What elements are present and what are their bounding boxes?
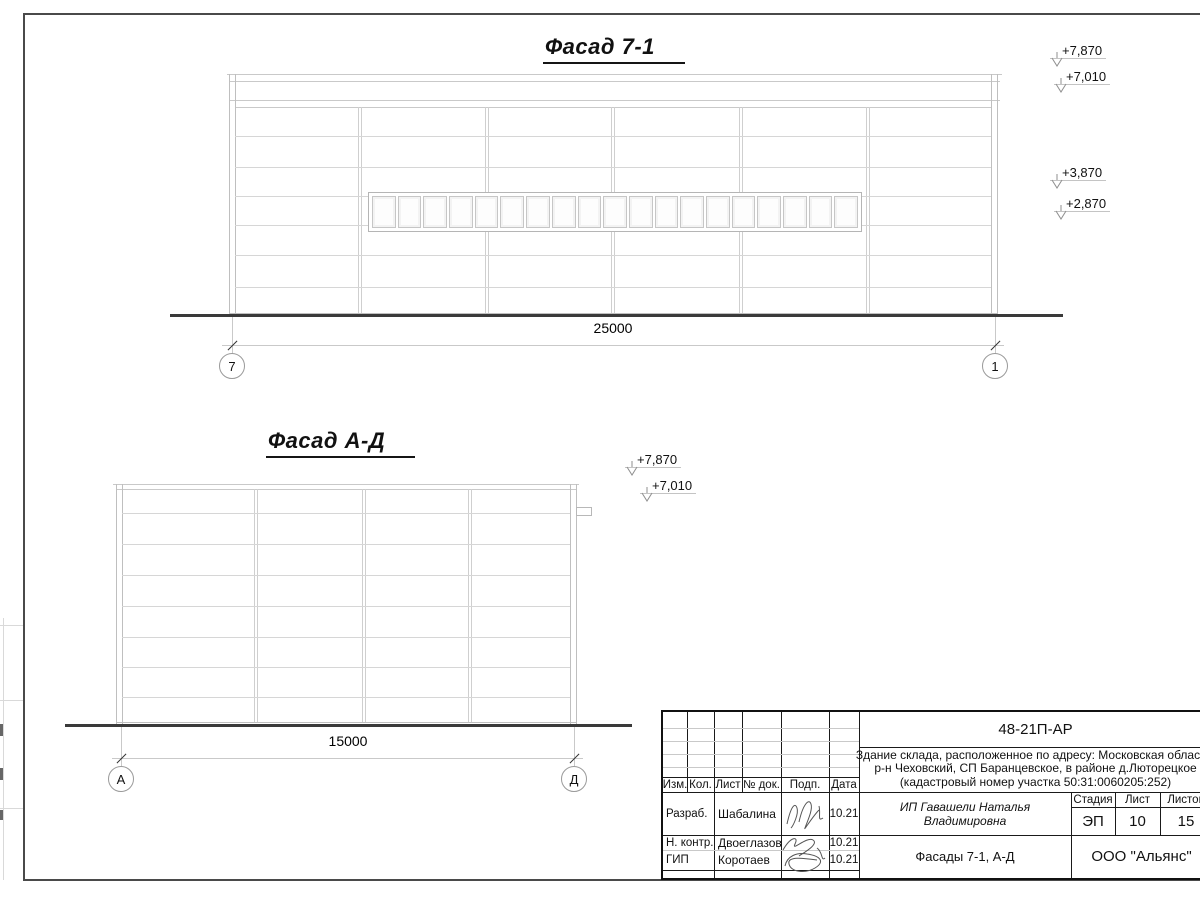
wall-edge bbox=[235, 74, 236, 315]
wall-edge bbox=[122, 484, 123, 725]
panel-line bbox=[235, 287, 991, 288]
dimension-line bbox=[222, 345, 1004, 346]
sheet-value: 10 bbox=[1115, 807, 1160, 835]
stamp-line bbox=[663, 741, 859, 742]
facade-7-1-title: Фасад 7-1 bbox=[543, 34, 685, 64]
signature bbox=[777, 832, 833, 876]
dimension-text: 25000 bbox=[563, 320, 663, 336]
panel-line bbox=[122, 606, 570, 607]
column-line bbox=[358, 107, 362, 313]
organization-name: ООО "Альянс" bbox=[1071, 835, 1200, 878]
window-pane bbox=[757, 196, 781, 228]
level-symbol-icon bbox=[1050, 52, 1064, 68]
project-description-line: р-н Чеховский, СП Баранцевское, в районе… bbox=[859, 761, 1200, 775]
margin-text-fragment bbox=[0, 810, 3, 820]
signature bbox=[783, 796, 829, 834]
level-symbol-icon bbox=[640, 487, 654, 503]
col-header-doc: № док. bbox=[742, 777, 781, 792]
window-pane bbox=[449, 196, 473, 228]
window-pane bbox=[783, 196, 807, 228]
parapet-line bbox=[113, 484, 579, 485]
wall-edge bbox=[116, 484, 117, 725]
window-pane bbox=[526, 196, 550, 228]
project-description-line: Здание склада, расположенное по адресу: … bbox=[859, 747, 1200, 762]
panel-line bbox=[122, 575, 570, 576]
person-name: Шабалина bbox=[718, 792, 780, 835]
level-value: +2,870 bbox=[1066, 196, 1106, 211]
stamp-line bbox=[663, 754, 859, 755]
role-label: Разраб. bbox=[666, 792, 714, 835]
level-symbol-icon bbox=[1054, 205, 1068, 221]
window-pane bbox=[398, 196, 422, 228]
level-symbol-icon bbox=[1050, 174, 1064, 190]
ground-line bbox=[65, 724, 632, 727]
window-pane bbox=[680, 196, 704, 228]
stamp-line bbox=[663, 728, 859, 729]
doc-number: 48-21П-АР bbox=[859, 712, 1200, 747]
level-symbol-icon bbox=[625, 461, 639, 477]
margin-line bbox=[0, 700, 23, 701]
col-header-list: Лист bbox=[714, 777, 742, 792]
role-label: Н. контр. bbox=[666, 835, 714, 850]
stamp-line bbox=[663, 767, 859, 768]
title-block: Изм. Кол. Лист № док. Подп. Дата Разраб.… bbox=[661, 710, 1200, 880]
column-line bbox=[866, 107, 870, 313]
ribbon-window bbox=[368, 192, 862, 232]
parapet-line bbox=[227, 74, 1002, 75]
wall-edge bbox=[997, 74, 998, 315]
stamp-line bbox=[714, 712, 715, 878]
panel-line bbox=[122, 667, 570, 668]
wall-edge bbox=[576, 484, 577, 725]
panel-line bbox=[235, 136, 991, 137]
extension-line bbox=[574, 727, 575, 766]
window-pane bbox=[475, 196, 499, 228]
frame-border-top bbox=[23, 13, 1200, 15]
panel-line bbox=[122, 513, 570, 514]
window-pane bbox=[706, 196, 730, 228]
project-description-line: (кадастровый номер участка 50:31:0060205… bbox=[859, 775, 1200, 789]
window-pane bbox=[500, 196, 524, 228]
ground-line bbox=[170, 314, 1063, 317]
window-pane bbox=[423, 196, 447, 228]
col-header-data: Дата bbox=[829, 777, 859, 792]
wall-edge bbox=[229, 74, 230, 315]
level-mark: +2,870 bbox=[1054, 196, 1112, 226]
grid-bubble-7: 7 bbox=[219, 353, 245, 379]
stage-value: ЭП bbox=[1071, 807, 1115, 835]
level-mark: +7,010 bbox=[1054, 69, 1112, 99]
level-value: +7,870 bbox=[1062, 43, 1102, 58]
role-label: ГИП bbox=[666, 850, 714, 870]
parapet-line bbox=[116, 489, 576, 490]
level-value: +7,010 bbox=[1066, 69, 1106, 84]
level-mark: +3,870 bbox=[1050, 165, 1108, 195]
dimension-line bbox=[112, 758, 583, 759]
window-pane bbox=[809, 196, 833, 228]
col-header-izm: Изм. bbox=[663, 777, 687, 792]
grid-bubble-a: А bbox=[108, 766, 134, 792]
client-name: ИП Гавашели Наталья Владимировна bbox=[859, 792, 1071, 835]
level-mark: +7,010 bbox=[640, 478, 698, 508]
extension-line bbox=[232, 317, 233, 354]
window-pane bbox=[372, 196, 396, 228]
parapet-line bbox=[229, 100, 1000, 101]
level-value: +7,870 bbox=[637, 452, 677, 467]
sheet-header: Лист bbox=[1115, 792, 1160, 807]
margin-line bbox=[0, 625, 23, 626]
person-name: Коротаев bbox=[718, 850, 780, 870]
date-value: 10.21 bbox=[829, 850, 859, 870]
dimension-text: 15000 bbox=[298, 733, 398, 749]
stage-header: Стадия bbox=[1071, 792, 1115, 807]
facade-a-d-title: Фасад А-Д bbox=[266, 428, 415, 458]
frame-border-left bbox=[23, 13, 25, 881]
margin-text-fragment bbox=[0, 768, 3, 780]
sheet-title: Фасады 7-1, А-Д bbox=[859, 835, 1071, 878]
panel-line bbox=[122, 697, 570, 698]
sheets-header: Листов bbox=[1160, 792, 1200, 807]
parapet-line bbox=[229, 81, 1000, 82]
plinth-line bbox=[116, 722, 576, 723]
margin-text-fragment bbox=[0, 724, 3, 736]
wall-edge bbox=[570, 484, 571, 725]
grid-bubble-d: Д bbox=[561, 766, 587, 792]
window-pane bbox=[834, 196, 858, 228]
level-symbol-icon bbox=[1054, 78, 1068, 94]
sheets-value: 15 bbox=[1160, 807, 1200, 835]
date-value: 10.21 bbox=[829, 792, 859, 835]
col-header-kol: Кол. bbox=[687, 777, 714, 792]
window-pane bbox=[655, 196, 679, 228]
window-pane bbox=[552, 196, 576, 228]
person-name: Двоеглазов bbox=[718, 835, 780, 850]
drawing-sheet: { "drawing": { "facade_7_1": { "title": … bbox=[0, 0, 1200, 900]
window-pane bbox=[629, 196, 653, 228]
extension-line bbox=[121, 727, 122, 766]
margin-line bbox=[3, 618, 4, 880]
panel-line bbox=[235, 255, 991, 256]
window-pane bbox=[603, 196, 627, 228]
grid-bubble-1: 1 bbox=[982, 353, 1008, 379]
panel-line bbox=[235, 167, 991, 168]
roof-outlet bbox=[576, 507, 592, 516]
level-value: +3,870 bbox=[1062, 165, 1102, 180]
panel-line bbox=[122, 544, 570, 545]
wall-edge bbox=[991, 74, 992, 315]
panel-line bbox=[122, 637, 570, 638]
date-value: 10.21 bbox=[829, 835, 859, 850]
window-pane bbox=[578, 196, 602, 228]
window-strip-panes bbox=[372, 196, 858, 228]
margin-line bbox=[0, 808, 23, 809]
level-value: +7,010 bbox=[652, 478, 692, 493]
extension-line bbox=[995, 317, 996, 354]
window-pane bbox=[732, 196, 756, 228]
col-header-podp: Подп. bbox=[781, 777, 829, 792]
